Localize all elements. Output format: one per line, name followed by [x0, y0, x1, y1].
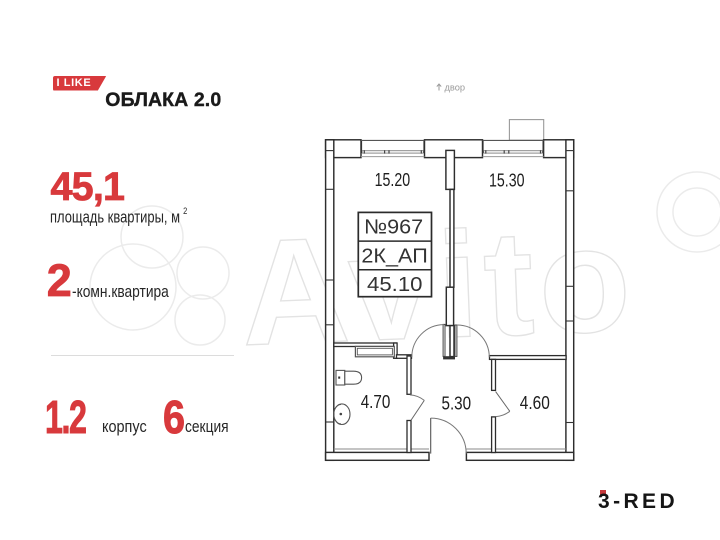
svg-text:45.10: 45.10 — [367, 273, 423, 296]
svg-text:5.30: 5.30 — [442, 393, 472, 413]
svg-text:4.60: 4.60 — [520, 393, 550, 413]
svg-text:4.70: 4.70 — [361, 392, 391, 412]
svg-text:15.20: 15.20 — [375, 169, 411, 190]
svg-text:№967: №967 — [364, 216, 423, 239]
svg-text:двор: двор — [445, 82, 466, 92]
svg-text:2К_АП: 2К_АП — [361, 244, 427, 267]
svg-text:15.30: 15.30 — [489, 169, 525, 190]
